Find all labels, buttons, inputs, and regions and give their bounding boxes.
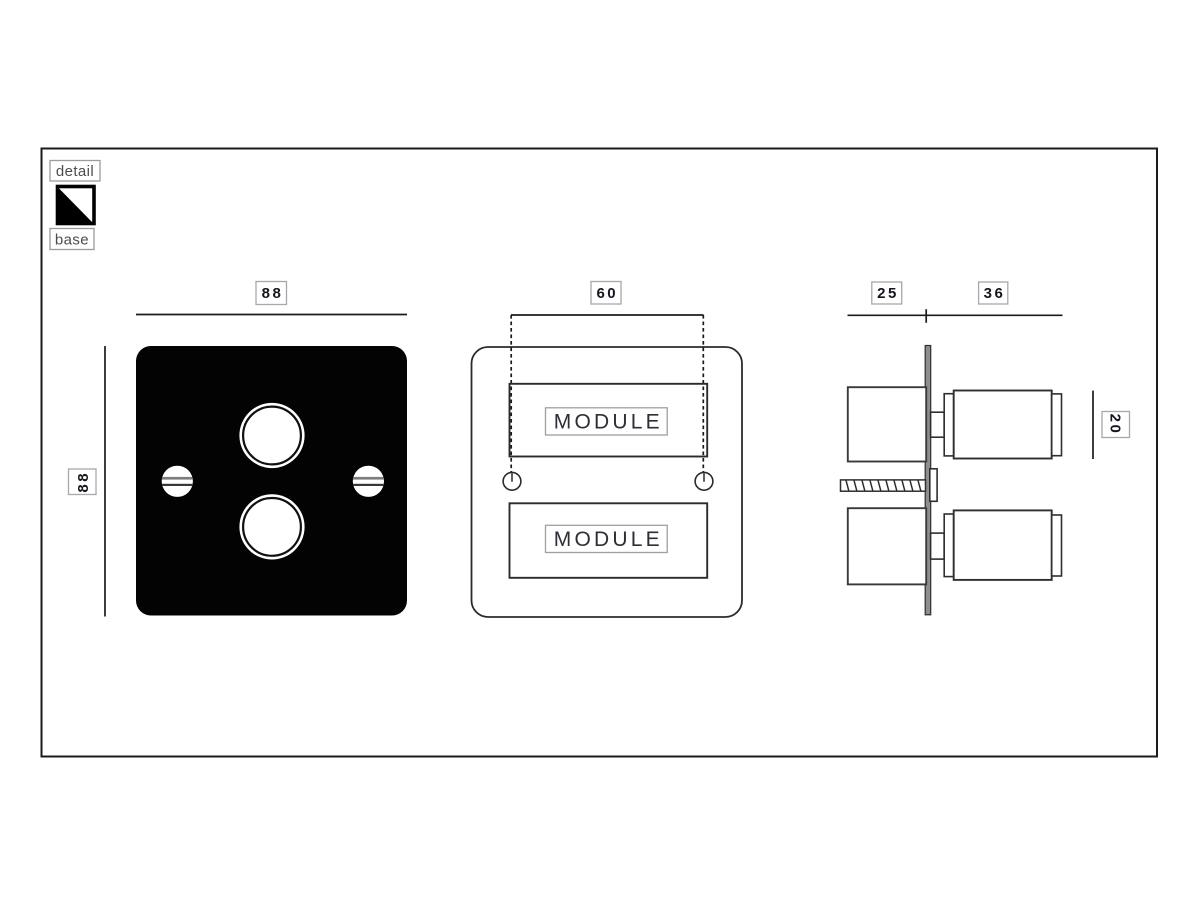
svg-text:60: 60 — [596, 285, 618, 302]
svg-text:base: base — [55, 232, 89, 249]
svg-text:MODULE: MODULE — [554, 410, 663, 433]
svg-text:36: 36 — [984, 285, 1006, 302]
svg-text:88: 88 — [262, 285, 284, 302]
svg-text:MODULE: MODULE — [554, 528, 663, 551]
svg-text:25: 25 — [877, 285, 899, 302]
svg-text:detail: detail — [56, 163, 94, 180]
svg-text:20: 20 — [1107, 414, 1124, 436]
svg-text:88: 88 — [75, 471, 92, 493]
